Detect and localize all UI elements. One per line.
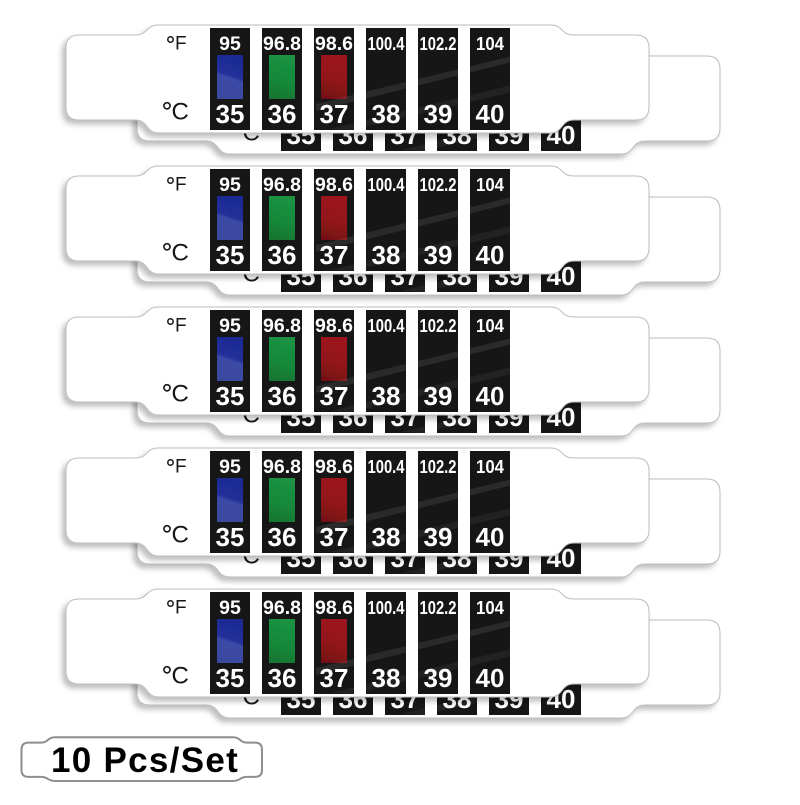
- svg-text:102.2: 102.2: [420, 175, 457, 195]
- svg-text:F: F: [175, 315, 187, 336]
- svg-text:C: C: [172, 522, 189, 549]
- svg-text:100.4: 100.4: [368, 175, 405, 195]
- svg-text:98.6: 98.6: [315, 315, 353, 337]
- svg-text:95: 95: [219, 33, 241, 55]
- svg-text:104: 104: [476, 34, 504, 54]
- svg-text:95: 95: [219, 597, 241, 619]
- svg-text:104: 104: [476, 457, 504, 477]
- svg-text:95: 95: [219, 174, 241, 196]
- svg-text:F: F: [175, 456, 187, 477]
- svg-text:36: 36: [268, 522, 297, 552]
- svg-text:98.6: 98.6: [315, 597, 353, 619]
- svg-text:35: 35: [216, 381, 245, 411]
- svg-text:10 Pcs/Set: 10 Pcs/Set: [51, 741, 239, 780]
- svg-text:35: 35: [216, 663, 245, 693]
- svg-text:96.8: 96.8: [263, 315, 301, 337]
- svg-text:40: 40: [476, 663, 505, 693]
- svg-text:104: 104: [476, 175, 504, 195]
- svg-text:104: 104: [476, 316, 504, 336]
- svg-text:95: 95: [219, 315, 241, 337]
- svg-text:102.2: 102.2: [420, 457, 457, 477]
- svg-text:98.6: 98.6: [315, 33, 353, 55]
- svg-text:98.6: 98.6: [315, 456, 353, 478]
- svg-text:C: C: [172, 99, 189, 126]
- svg-text:102.2: 102.2: [420, 598, 457, 618]
- svg-text:35: 35: [216, 522, 245, 552]
- svg-text:F: F: [175, 597, 187, 618]
- svg-text:40: 40: [476, 522, 505, 552]
- svg-text:36: 36: [268, 381, 297, 411]
- svg-text:C: C: [172, 240, 189, 267]
- svg-text:36: 36: [268, 99, 297, 129]
- svg-text:35: 35: [216, 99, 245, 129]
- svg-text:98.6: 98.6: [315, 174, 353, 196]
- svg-text:40: 40: [476, 240, 505, 270]
- svg-text:96.8: 96.8: [263, 456, 301, 478]
- svg-text:96.8: 96.8: [263, 174, 301, 196]
- svg-text:102.2: 102.2: [420, 316, 457, 336]
- svg-text:C: C: [172, 381, 189, 408]
- svg-text:95: 95: [219, 456, 241, 478]
- svg-text:F: F: [175, 33, 187, 54]
- svg-text:96.8: 96.8: [263, 597, 301, 619]
- svg-text:100.4: 100.4: [368, 34, 405, 54]
- svg-text:100.4: 100.4: [368, 598, 405, 618]
- svg-text:100.4: 100.4: [368, 316, 405, 336]
- svg-text:104: 104: [476, 598, 504, 618]
- svg-text:100.4: 100.4: [368, 457, 405, 477]
- svg-text:C: C: [172, 663, 189, 690]
- svg-text:96.8: 96.8: [263, 33, 301, 55]
- svg-text:40: 40: [476, 381, 505, 411]
- svg-text:35: 35: [216, 240, 245, 270]
- svg-text:F: F: [175, 174, 187, 195]
- svg-text:40: 40: [476, 99, 505, 129]
- svg-text:102.2: 102.2: [420, 34, 457, 54]
- svg-text:36: 36: [268, 663, 297, 693]
- svg-text:36: 36: [268, 240, 297, 270]
